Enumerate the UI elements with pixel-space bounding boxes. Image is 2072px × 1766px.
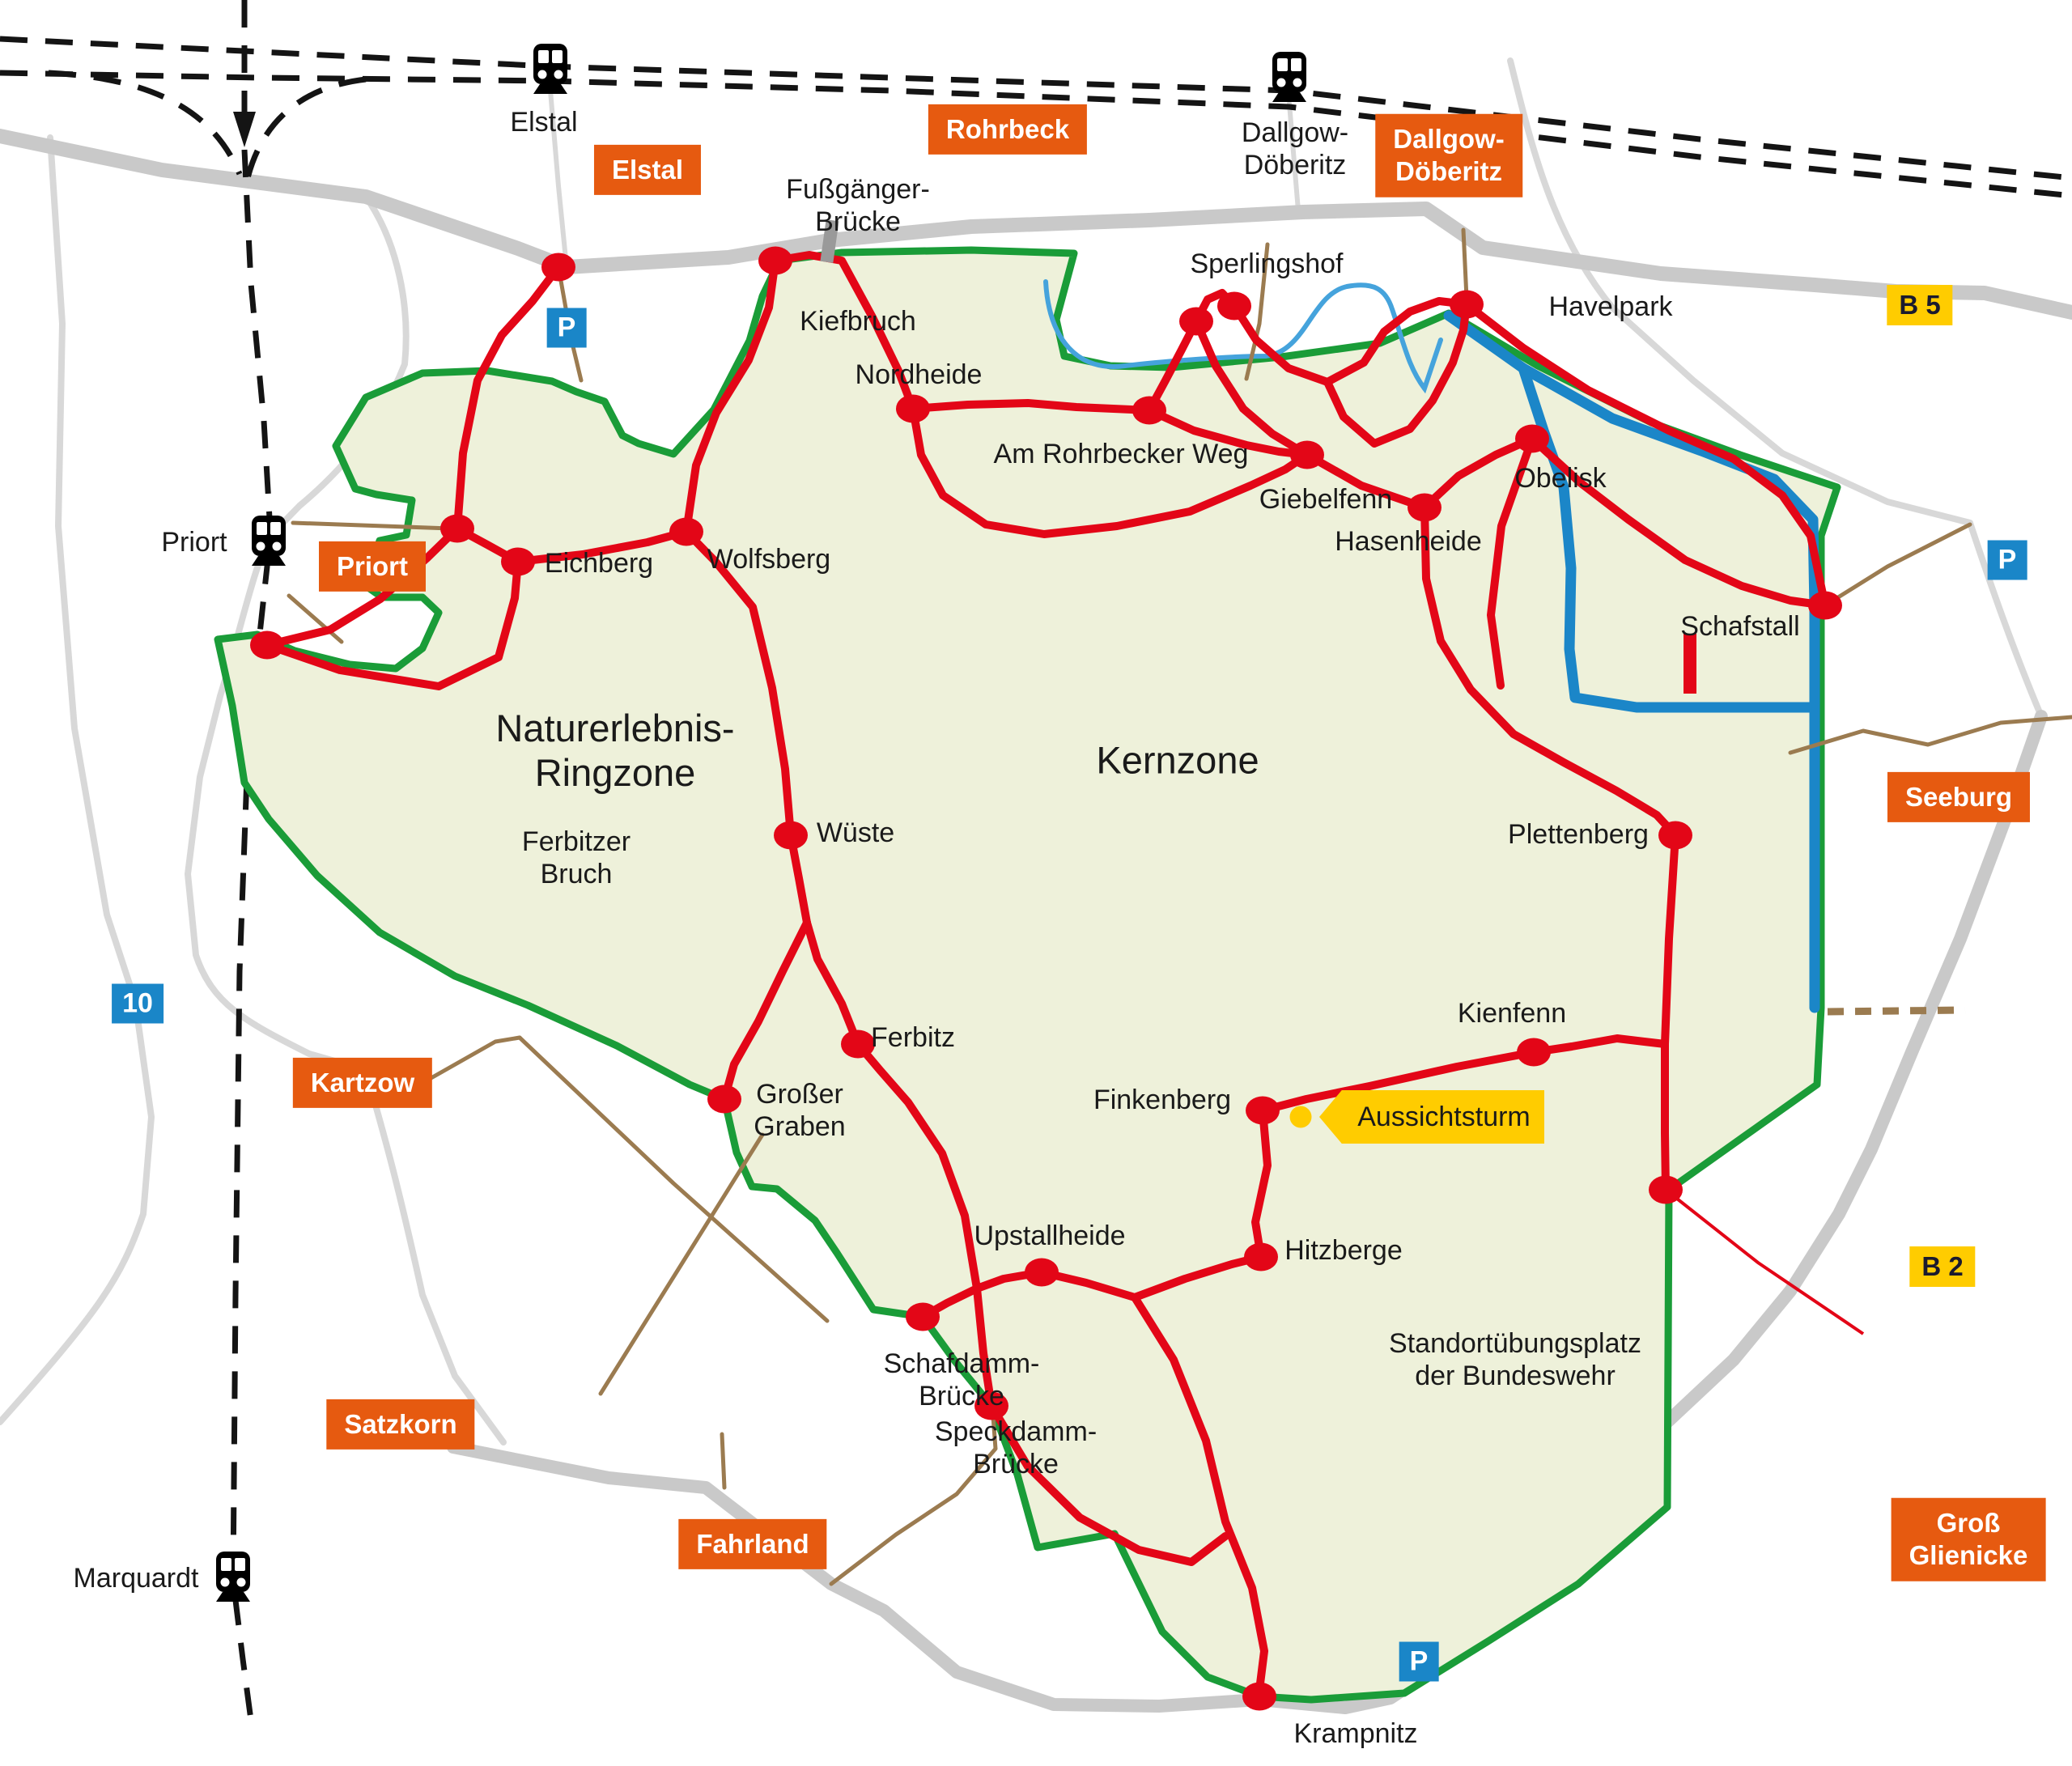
- trail-dot: [707, 1085, 741, 1114]
- trail-dot: [1025, 1259, 1059, 1287]
- train-station-icon: [1267, 50, 1311, 108]
- poi-label-krampnitz: Krampnitz: [1293, 1718, 1417, 1751]
- trail-dot: [841, 1030, 875, 1059]
- station-icon-dallgow-döberitz: [1267, 50, 1311, 108]
- poi-label-großer-graben: Großer Graben: [754, 1079, 845, 1144]
- trail-dot: [906, 1303, 940, 1331]
- station-icon-priort: [247, 514, 291, 572]
- parking-badge: P: [1988, 541, 2027, 580]
- poi-label-eichberg: Eichberg: [545, 548, 653, 580]
- poi-label-wüste: Wüste: [817, 817, 894, 850]
- poi-label-fußgänger-brücke: Fußgänger- Brücke: [786, 174, 930, 239]
- trail-dot: [1658, 821, 1692, 850]
- poi-label-finkenberg: Finkenberg: [1093, 1085, 1231, 1117]
- zone-label-standortübungsplatz-der-bundeswehr: Standortübungsplatz der Bundeswehr: [1389, 1328, 1641, 1393]
- motorway-badge-10: 10: [112, 984, 163, 1024]
- poi-label-hasenheide: Hasenheide: [1335, 526, 1481, 558]
- trail-dot: [1242, 1683, 1276, 1711]
- trail-dot: [1244, 1243, 1278, 1271]
- trail-dot: [896, 395, 930, 423]
- trail-dot: [541, 253, 575, 282]
- road-badge-b-5: B 5: [1887, 285, 1952, 325]
- poi-label-ferbitz: Ferbitz: [871, 1022, 955, 1055]
- lookout-tower-icon: [1290, 1106, 1312, 1128]
- poi-label-kienfenn: Kienfenn: [1458, 998, 1566, 1030]
- station-label-elstal: Elstal: [510, 107, 577, 139]
- trail-dot: [1517, 1038, 1551, 1067]
- trail-dot: [501, 548, 535, 576]
- town-badge-rohrbeck: Rohrbeck: [928, 104, 1087, 155]
- trail-dot: [1132, 397, 1166, 425]
- poi-label-hitzberge: Hitzberge: [1284, 1235, 1403, 1267]
- station-label-marquardt: Marquardt: [74, 1563, 199, 1595]
- trail-dot: [1179, 308, 1213, 336]
- poi-label-havelpark: Havelpark: [1548, 291, 1672, 324]
- lookout-tower-tag: Aussichtsturm: [1319, 1090, 1544, 1144]
- trail-dot: [1649, 1176, 1683, 1204]
- poi-label-wolfsberg: Wolfsberg: [707, 544, 830, 576]
- town-badge-fahrland: Fahrland: [678, 1519, 826, 1569]
- trail-dot: [1290, 441, 1324, 469]
- trail-dot: [669, 518, 703, 546]
- town-badge-satzkorn: Satzkorn: [326, 1399, 474, 1450]
- trail-dot: [774, 821, 808, 850]
- zone-label-kernzone: Kernzone: [1096, 739, 1259, 783]
- road-badge-b-2: B 2: [1909, 1246, 1975, 1287]
- zone-label-naturerlebnis-ringzone: Naturerlebnis- Ringzone: [495, 707, 734, 796]
- trail-dot: [1808, 592, 1842, 620]
- train-station-icon: [211, 1550, 255, 1608]
- zone-label-ferbitzer-bruch: Ferbitzer Bruch: [522, 826, 631, 891]
- station-label-dallgow-döberitz: Dallgow- Döberitz: [1242, 117, 1348, 182]
- poi-label-giebelfenn: Giebelfenn: [1259, 484, 1392, 516]
- poi-label-plettenberg: Plettenberg: [1508, 819, 1649, 851]
- trail-dot: [1450, 291, 1484, 319]
- station-icon-elstal: [529, 42, 572, 100]
- trail-dot: [250, 631, 284, 660]
- poi-label-schafdamm-brücke: Schafdamm- Brücke: [884, 1348, 1040, 1413]
- town-badge-priort: Priort: [319, 541, 426, 592]
- trail-dot: [1217, 292, 1251, 321]
- poi-label-upstallheide: Upstallheide: [974, 1220, 1125, 1253]
- town-badge-kartzow: Kartzow: [293, 1058, 432, 1108]
- train-station-icon: [247, 514, 291, 572]
- town-badge-dallgow-döberitz: Dallgow- Döberitz: [1375, 114, 1522, 197]
- map-labels: Elstal Dallgow- Döberitz Priort Marquard…: [0, 0, 2072, 1766]
- town-badge-elstal: Elstal: [594, 145, 701, 195]
- poi-label-obelisk: Obelisk: [1514, 463, 1606, 495]
- poi-label-am-rohrbecker-weg: Am Rohrbecker Weg: [994, 439, 1249, 471]
- trail-dot: [758, 247, 792, 275]
- poi-label-kiefbruch: Kiefbruch: [800, 306, 916, 338]
- station-label-priort: Priort: [161, 527, 227, 559]
- trail-dot: [1408, 494, 1441, 522]
- poi-label-sperlingshof: Sperlingshof: [1190, 248, 1343, 281]
- parking-badge: P: [1399, 1642, 1439, 1682]
- town-badge-groß-glienicke: Groß Glienicke: [1892, 1498, 2046, 1581]
- poi-label-schafstall: Schafstall: [1680, 611, 1799, 643]
- poi-label-speckdamm-brücke: Speckdamm- Brücke: [935, 1416, 1097, 1481]
- trail-dot: [1515, 425, 1549, 453]
- town-badge-seeburg: Seeburg: [1887, 772, 2030, 822]
- trail-dot: [440, 515, 474, 543]
- train-station-icon: [529, 42, 572, 100]
- trail-dot: [1246, 1097, 1280, 1125]
- map-canvas: Elstal Dallgow- Döberitz Priort Marquard…: [0, 0, 2072, 1766]
- parking-badge: P: [547, 308, 587, 348]
- station-icon-marquardt: [211, 1550, 255, 1608]
- poi-label-nordheide: Nordheide: [856, 359, 983, 392]
